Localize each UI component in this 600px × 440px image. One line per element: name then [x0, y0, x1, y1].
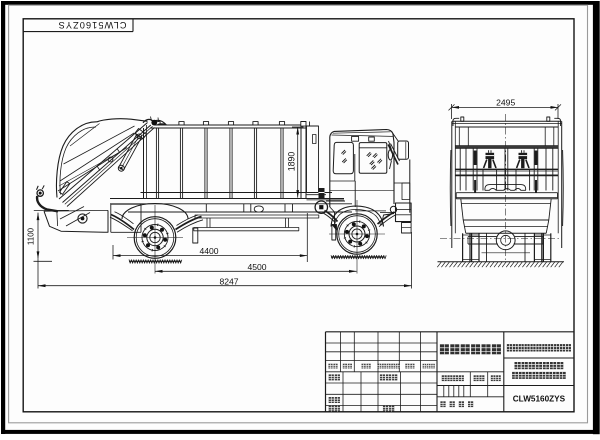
svg-text:4500: 4500 [247, 262, 266, 272]
svg-text:1100: 1100 [26, 227, 35, 245]
svg-text:CLW5160ZYS: CLW5160ZYS [513, 395, 566, 404]
svg-text:CLW5160ZYS: CLW5160ZYS [57, 20, 126, 30]
svg-text:8247: 8247 [219, 276, 238, 286]
svg-text:1890: 1890 [287, 152, 297, 172]
svg-text:2495: 2495 [496, 98, 515, 108]
svg-text:4400: 4400 [199, 246, 218, 256]
